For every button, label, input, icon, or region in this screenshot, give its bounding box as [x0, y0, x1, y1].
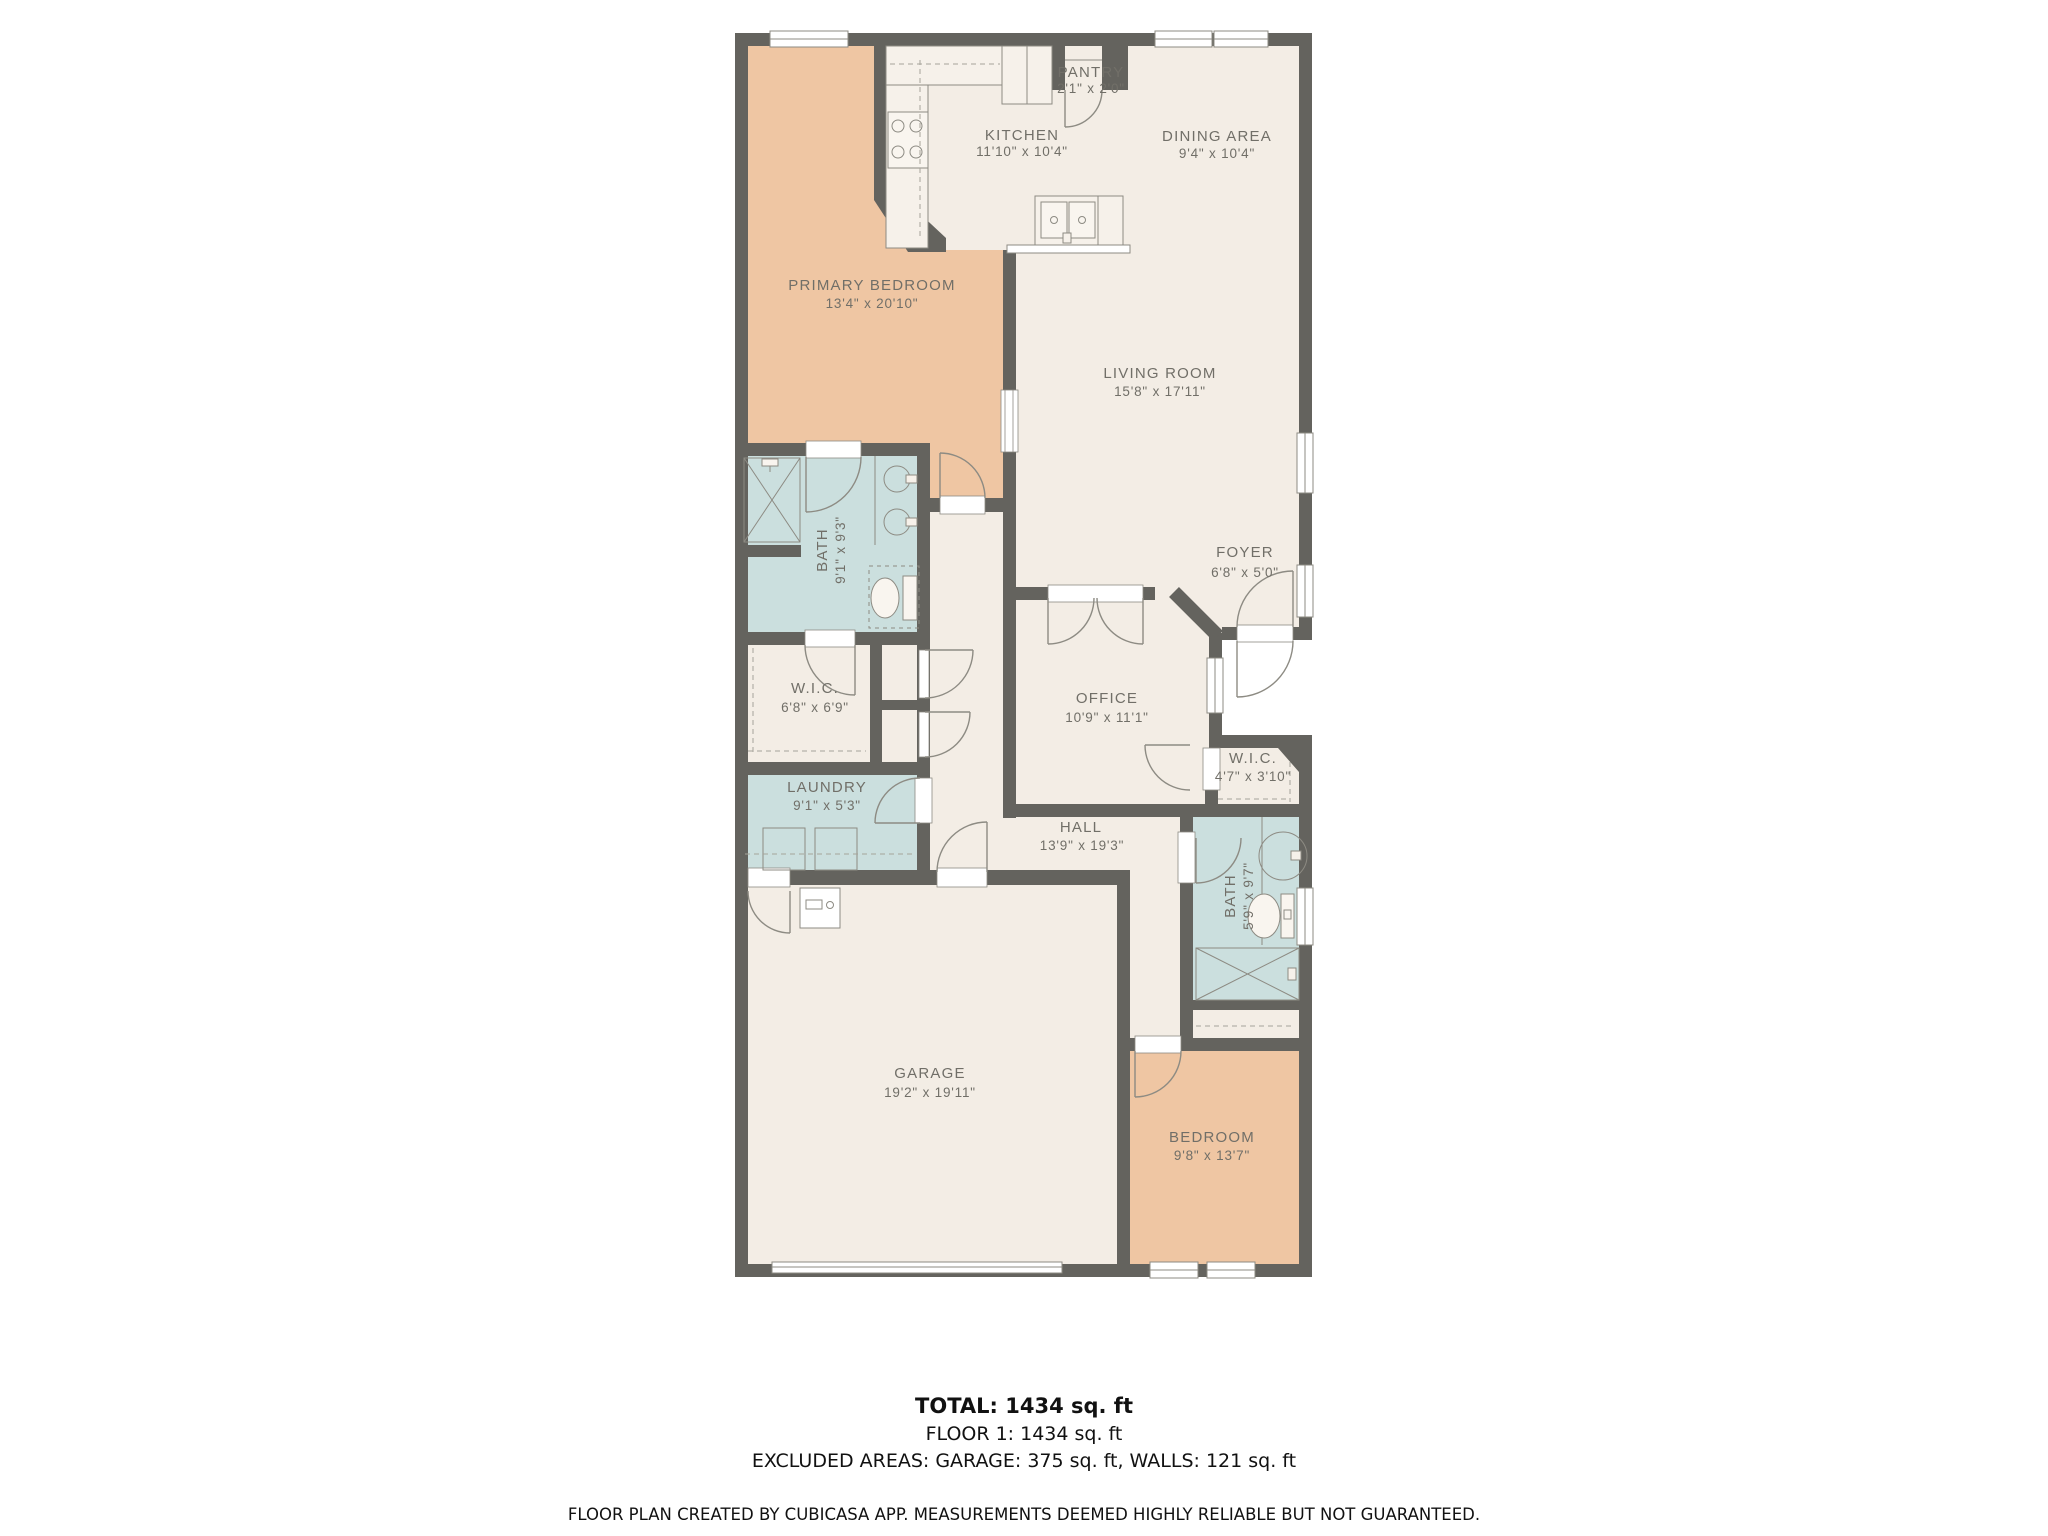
room-name: LIVING ROOM [1103, 365, 1216, 382]
floor-area: FLOOR 1: 1434 sq. ft [0, 1421, 2048, 1448]
disclaimer: FLOOR PLAN CREATED BY CUBICASA APP. MEAS… [0, 1505, 2048, 1524]
fridge-icon [1002, 46, 1052, 104]
room-name: W.I.C. [1229, 750, 1277, 767]
room-name: BATH [814, 528, 831, 572]
room-dims: 13'4" x 20'10" [826, 296, 919, 311]
excluded-areas: EXCLUDED AREAS: GARAGE: 375 sq. ft, WALL… [0, 1448, 2048, 1475]
floor-plan-page: PANTRY 2'1" x 2'0" KITCHEN 11'10" x 10'4… [0, 0, 2048, 1536]
window [770, 31, 848, 47]
room-dims: 5'9" x 9'7" [1241, 862, 1256, 930]
room-dims: 9'8" x 13'7" [1174, 1148, 1250, 1163]
window [1207, 1262, 1255, 1278]
room-name: BATH [1222, 874, 1239, 918]
kitchen-counter-top [886, 46, 1002, 85]
room-name: HALL [1060, 819, 1102, 836]
floor-fills [735, 33, 1312, 1277]
window [1207, 658, 1223, 713]
window [1297, 565, 1313, 617]
window [1297, 888, 1313, 945]
room-dims: 4'7" x 3'10" [1215, 769, 1291, 784]
room-dims: 9'4" x 10'4" [1179, 146, 1255, 161]
room-dims: 10'9" x 11'1" [1065, 710, 1148, 725]
water-heater-icon [800, 888, 840, 928]
room-name: BEDROOM [1169, 1129, 1255, 1146]
window [1150, 1262, 1198, 1278]
room-dims: 19'2" x 19'11" [884, 1085, 976, 1100]
room-name: GARAGE [894, 1065, 965, 1082]
room-name: FOYER [1216, 544, 1274, 561]
room-name: DINING AREA [1162, 128, 1272, 145]
window [1155, 31, 1212, 47]
room-dims: 9'1" x 9'3" [833, 516, 848, 584]
room-name: PRIMARY BEDROOM [788, 277, 955, 294]
cased-opening-hall-living [1001, 390, 1018, 452]
room-name: PANTRY [1058, 64, 1125, 81]
room-dims: 2'1" x 2'0" [1057, 81, 1125, 96]
room-dims: 15'8" x 17'11" [1114, 384, 1206, 399]
total-area: TOTAL: 1434 sq. ft [0, 1392, 2048, 1421]
room-label-kitchen: KITCHEN 11'10" x 10'4" [976, 127, 1068, 159]
window [1214, 31, 1268, 47]
window [1297, 433, 1313, 493]
garage-door [772, 1262, 1062, 1273]
room-dims: 11'10" x 10'4" [976, 144, 1068, 159]
room-name: OFFICE [1076, 690, 1138, 707]
floor-plan-drawing: PANTRY 2'1" x 2'0" KITCHEN 11'10" x 10'4… [0, 0, 2048, 1536]
stove-icon [888, 112, 928, 168]
room-name: LAUNDRY [787, 779, 867, 796]
room-name: W.I.C. [791, 680, 839, 697]
room-dims: 13'9" x 19'3" [1040, 838, 1124, 853]
room-dims: 9'1" x 5'3" [793, 798, 861, 813]
room-name: KITCHEN [985, 127, 1059, 144]
room-dims: 6'8" x 5'0" [1211, 565, 1279, 580]
room-dims: 6'8" x 6'9" [781, 700, 849, 715]
room-label-pantry: PANTRY 2'1" x 2'0" [1057, 64, 1125, 96]
area-summary: TOTAL: 1434 sq. ft FLOOR 1: 1434 sq. ft … [0, 1392, 2048, 1475]
